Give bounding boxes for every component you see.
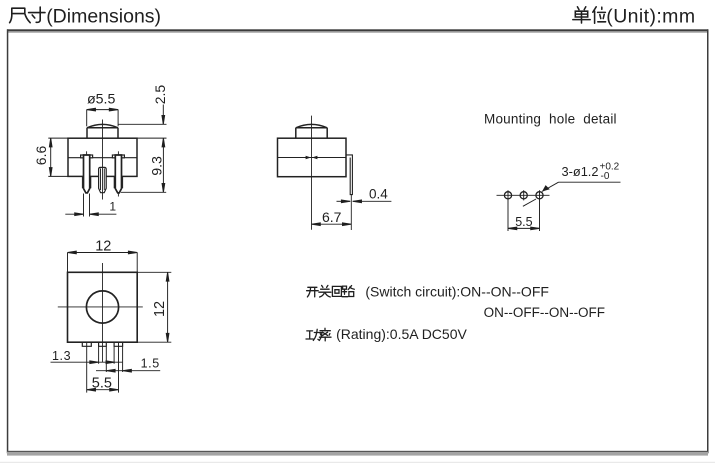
svg-text:3-ø1.2: 3-ø1.2	[562, 164, 599, 179]
svg-text:6.7: 6.7	[322, 209, 342, 225]
svg-text:0.4: 0.4	[369, 186, 388, 201]
svg-text:(Dimensions): (Dimensions)	[46, 5, 161, 27]
svg-text:(Unit):mm: (Unit):mm	[606, 5, 695, 27]
svg-text:5.5: 5.5	[92, 375, 112, 391]
svg-text:(Switch circuit):ON--ON--OFF: (Switch circuit):ON--ON--OFF	[365, 284, 549, 300]
svg-text:6.6: 6.6	[33, 146, 49, 166]
svg-text:-0: -0	[601, 171, 610, 182]
svg-text:2.5: 2.5	[152, 85, 168, 105]
svg-text:Mounting hole detail: Mounting hole detail	[484, 112, 617, 127]
svg-text:1.3: 1.3	[52, 349, 71, 363]
svg-text:12: 12	[152, 301, 168, 317]
svg-text:(Rating):0.5A DC50V: (Rating):0.5A DC50V	[336, 326, 467, 342]
svg-text:9.3: 9.3	[149, 156, 165, 176]
svg-text:1.5: 1.5	[141, 356, 160, 370]
svg-text:5.5: 5.5	[515, 215, 532, 229]
svg-text:12: 12	[95, 238, 111, 254]
svg-text:ON--OFF--ON--OFF: ON--OFF--ON--OFF	[484, 305, 605, 320]
svg-text:ø5.5: ø5.5	[87, 91, 115, 107]
svg-text:1: 1	[109, 200, 116, 214]
